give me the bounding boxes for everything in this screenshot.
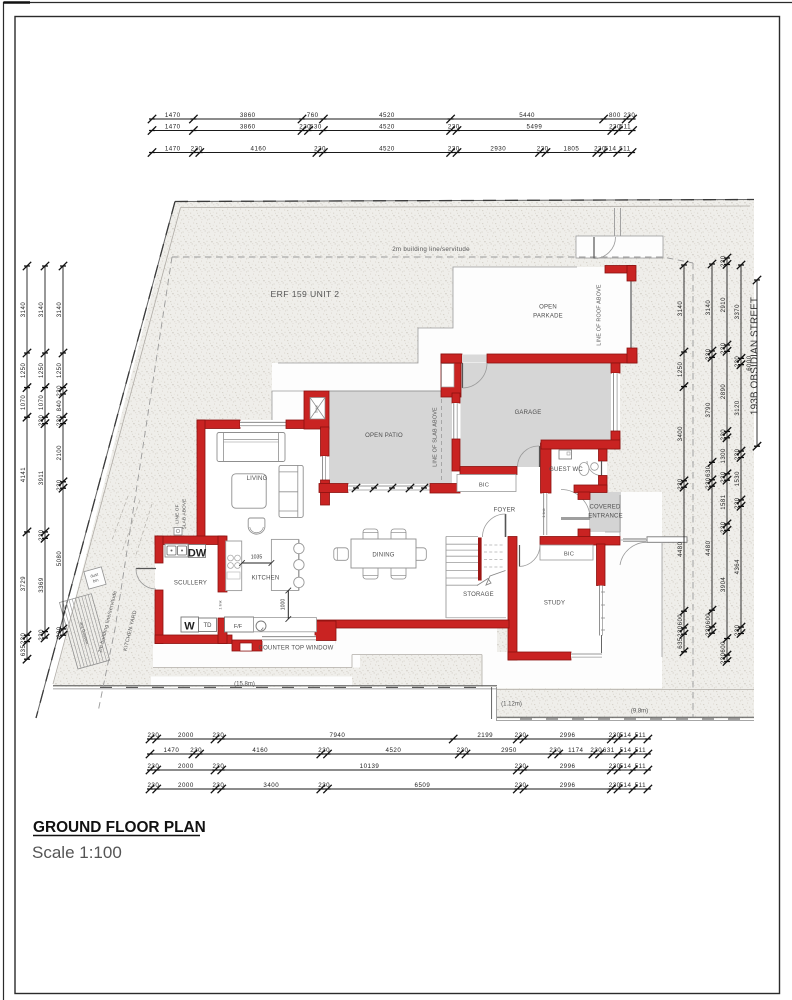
svg-text:2996: 2996 <box>560 732 576 739</box>
svg-text:STUDY: STUDY <box>544 601 565 607</box>
svg-text:OPEN PATIO: OPEN PATIO <box>365 433 403 439</box>
svg-text:514: 514 <box>620 732 632 739</box>
svg-text:600: 600 <box>706 613 712 625</box>
svg-text:230: 230 <box>678 478 684 490</box>
svg-text:ERF 159 UNIT 2: ERF 159 UNIT 2 <box>271 289 340 299</box>
svg-text:GROUND FLOOR PLAN: GROUND FLOOR PLAN <box>33 819 206 836</box>
svg-text:1035: 1035 <box>251 555 263 561</box>
svg-text:230: 230 <box>190 747 202 754</box>
svg-text:W: W <box>184 621 195 633</box>
svg-text:230: 230 <box>212 763 224 770</box>
svg-text:3729: 3729 <box>21 576 27 592</box>
svg-text:6000: 6000 <box>747 355 753 371</box>
svg-text:1000: 1000 <box>281 599 287 611</box>
svg-text:4160: 4160 <box>252 747 268 754</box>
svg-text:4520: 4520 <box>379 123 395 130</box>
svg-text:4141: 4141 <box>21 467 27 483</box>
svg-text:(1.12m): (1.12m) <box>501 702 522 708</box>
svg-text:3140: 3140 <box>21 302 27 318</box>
svg-text:SCULLERY: SCULLERY <box>174 581 207 587</box>
svg-text:230: 230 <box>314 145 326 152</box>
svg-text:DW: DW <box>188 548 207 560</box>
svg-text:514: 514 <box>605 145 617 152</box>
svg-text:230: 230 <box>191 145 203 152</box>
svg-text:630: 630 <box>706 465 712 477</box>
svg-text:3140: 3140 <box>39 302 45 318</box>
svg-text:1530: 1530 <box>735 471 741 487</box>
svg-text:760: 760 <box>307 112 319 119</box>
svg-text:230: 230 <box>678 625 684 637</box>
svg-text:4520: 4520 <box>379 145 395 152</box>
svg-text:1470: 1470 <box>165 145 181 152</box>
svg-text:4480: 4480 <box>678 541 684 557</box>
svg-text:230: 230 <box>735 448 741 460</box>
svg-text:511: 511 <box>635 732 646 739</box>
svg-text:STORAGE: STORAGE <box>463 592 494 598</box>
svg-text:1470: 1470 <box>164 747 180 754</box>
svg-text:230: 230 <box>212 732 224 739</box>
svg-text:1070: 1070 <box>39 395 45 411</box>
svg-text:PARKADE: PARKADE <box>533 314 563 320</box>
svg-text:230: 230 <box>735 624 741 636</box>
svg-text:511: 511 <box>635 763 646 770</box>
svg-text:230: 230 <box>721 471 727 483</box>
svg-text:3140: 3140 <box>678 301 684 317</box>
svg-text:5499: 5499 <box>527 123 543 130</box>
svg-text:230: 230 <box>57 385 63 397</box>
svg-text:230: 230 <box>212 782 224 789</box>
svg-text:4480: 4480 <box>706 540 712 556</box>
svg-text:3790: 3790 <box>706 402 712 418</box>
svg-text:230: 230 <box>448 123 460 130</box>
svg-text:3911: 3911 <box>39 470 45 485</box>
svg-text:1470: 1470 <box>165 112 181 119</box>
svg-text:1 link: 1 link <box>218 600 223 609</box>
svg-text:GARAGE: GARAGE <box>515 410 542 416</box>
svg-text:1805: 1805 <box>564 145 580 152</box>
svg-text:2199: 2199 <box>477 732 493 739</box>
svg-text:1250: 1250 <box>678 361 684 377</box>
svg-text:2000: 2000 <box>178 763 194 770</box>
svg-text:LIVING: LIVING <box>247 476 268 482</box>
svg-text:230: 230 <box>457 747 469 754</box>
svg-text:2996: 2996 <box>560 782 576 789</box>
svg-text:1174: 1174 <box>568 747 583 754</box>
svg-text:4160: 4160 <box>251 145 267 152</box>
svg-text:7940: 7940 <box>330 732 346 739</box>
svg-text:2000: 2000 <box>178 782 194 789</box>
svg-text:4520: 4520 <box>379 112 395 119</box>
svg-text:1581: 1581 <box>721 494 727 510</box>
svg-text:530: 530 <box>310 123 322 130</box>
svg-text:230: 230 <box>147 763 159 770</box>
svg-text:230: 230 <box>448 145 460 152</box>
svg-text:635: 635 <box>678 637 684 649</box>
svg-text:600: 600 <box>678 614 684 626</box>
svg-text:1 link: 1 link <box>541 508 546 517</box>
svg-text:2000: 2000 <box>178 732 194 739</box>
svg-text:631: 631 <box>603 747 615 754</box>
svg-text:230: 230 <box>721 652 727 664</box>
svg-text:230: 230 <box>706 624 712 636</box>
svg-text:230: 230 <box>57 414 63 426</box>
svg-text:F/F: F/F <box>234 624 243 630</box>
svg-text:TD: TD <box>204 623 213 629</box>
svg-text:DINING: DINING <box>372 553 394 559</box>
svg-text:2930: 2930 <box>490 145 506 152</box>
svg-text:230: 230 <box>515 732 527 739</box>
svg-text:1470: 1470 <box>165 123 181 130</box>
svg-text:230: 230 <box>706 477 712 489</box>
svg-text:braai: braai <box>315 405 319 413</box>
svg-text:230: 230 <box>590 747 602 754</box>
svg-text:1250: 1250 <box>57 362 63 378</box>
svg-text:514: 514 <box>620 782 632 789</box>
svg-text:635: 635 <box>21 644 27 656</box>
svg-text:230: 230 <box>318 782 330 789</box>
svg-text:1250: 1250 <box>39 362 45 378</box>
svg-text:4520: 4520 <box>386 747 402 754</box>
svg-text:LINE OF SLAB ABOVE: LINE OF SLAB ABOVE <box>433 407 439 467</box>
svg-text:LINE OF: LINE OF <box>175 504 181 523</box>
svg-text:SLAB ABOVE: SLAB ABOVE <box>182 499 188 530</box>
svg-text:230: 230 <box>21 632 27 644</box>
svg-text:840: 840 <box>57 400 63 412</box>
svg-text:2m building line/servitude: 2m building line/servitude <box>392 246 470 253</box>
svg-text:OPEN: OPEN <box>539 305 557 311</box>
svg-text:LINE OF ROOF ABOVE: LINE OF ROOF ABOVE <box>597 284 603 346</box>
svg-text:230: 230 <box>623 112 635 119</box>
svg-text:BIC: BIC <box>479 483 489 489</box>
svg-text:230: 230 <box>318 747 330 754</box>
svg-text:5080: 5080 <box>57 551 63 567</box>
svg-text:3400: 3400 <box>678 426 684 442</box>
svg-text:230: 230 <box>721 521 727 533</box>
svg-text:3140: 3140 <box>706 300 712 316</box>
svg-text:2950: 2950 <box>501 747 517 754</box>
svg-text:230: 230 <box>515 763 527 770</box>
svg-text:230: 230 <box>549 747 561 754</box>
svg-text:(9.8m): (9.8m) <box>631 709 648 715</box>
svg-text:COVERED: COVERED <box>589 505 621 511</box>
svg-text:511: 511 <box>619 145 630 152</box>
svg-text:2996: 2996 <box>560 763 576 770</box>
svg-text:230: 230 <box>39 414 45 426</box>
svg-text:230: 230 <box>537 145 549 152</box>
svg-text:3370: 3370 <box>735 304 741 320</box>
svg-text:511: 511 <box>635 747 646 754</box>
svg-text:514: 514 <box>620 763 632 770</box>
svg-text:2890: 2890 <box>721 384 727 400</box>
svg-text:230: 230 <box>147 732 159 739</box>
svg-text:514: 514 <box>620 747 632 754</box>
svg-text:230: 230 <box>57 626 63 638</box>
svg-text:600: 600 <box>721 641 727 653</box>
svg-text:230: 230 <box>721 429 727 441</box>
svg-text:230: 230 <box>706 348 712 360</box>
svg-text:1070: 1070 <box>21 395 27 411</box>
svg-text:ENTRANCE: ENTRANCE <box>588 514 623 520</box>
svg-text:2100: 2100 <box>57 445 63 461</box>
svg-text:FOYER: FOYER <box>494 508 516 514</box>
svg-text:Scale 1:100: Scale 1:100 <box>32 843 122 862</box>
svg-text:1300: 1300 <box>721 448 727 464</box>
svg-text:511: 511 <box>635 782 646 789</box>
svg-text:230: 230 <box>147 782 159 789</box>
svg-text:BIC: BIC <box>564 552 574 558</box>
svg-text:GUEST WC: GUEST WC <box>549 467 583 473</box>
svg-text:230: 230 <box>39 629 45 641</box>
svg-text:(15.8m): (15.8m) <box>234 682 255 688</box>
svg-text:230: 230 <box>735 497 741 509</box>
svg-text:230: 230 <box>39 529 45 541</box>
svg-text:800: 800 <box>609 112 621 119</box>
svg-text:3860: 3860 <box>240 123 256 130</box>
svg-text:230: 230 <box>735 356 741 368</box>
svg-text:1250: 1250 <box>21 362 27 378</box>
svg-text:3140: 3140 <box>57 302 63 318</box>
svg-text:230: 230 <box>515 782 527 789</box>
svg-text:3904: 3904 <box>721 577 727 593</box>
svg-text:KITCHEN: KITCHEN <box>252 576 280 582</box>
svg-text:230: 230 <box>57 479 63 491</box>
svg-text:511: 511 <box>620 123 631 130</box>
svg-text:5440: 5440 <box>519 112 535 119</box>
svg-text:230: 230 <box>721 342 727 354</box>
svg-text:2910: 2910 <box>721 297 727 313</box>
svg-text:3400: 3400 <box>263 782 279 789</box>
svg-text:230: 230 <box>721 255 727 267</box>
svg-text:6509: 6509 <box>415 782 431 789</box>
svg-text:10139: 10139 <box>360 763 380 770</box>
svg-text:3369: 3369 <box>39 577 45 593</box>
svg-text:3120: 3120 <box>735 400 741 416</box>
svg-text:4364: 4364 <box>735 559 741 575</box>
svg-text:3860: 3860 <box>240 112 256 119</box>
svg-text:COUNTER TOP WINDOW: COUNTER TOP WINDOW <box>259 646 334 652</box>
